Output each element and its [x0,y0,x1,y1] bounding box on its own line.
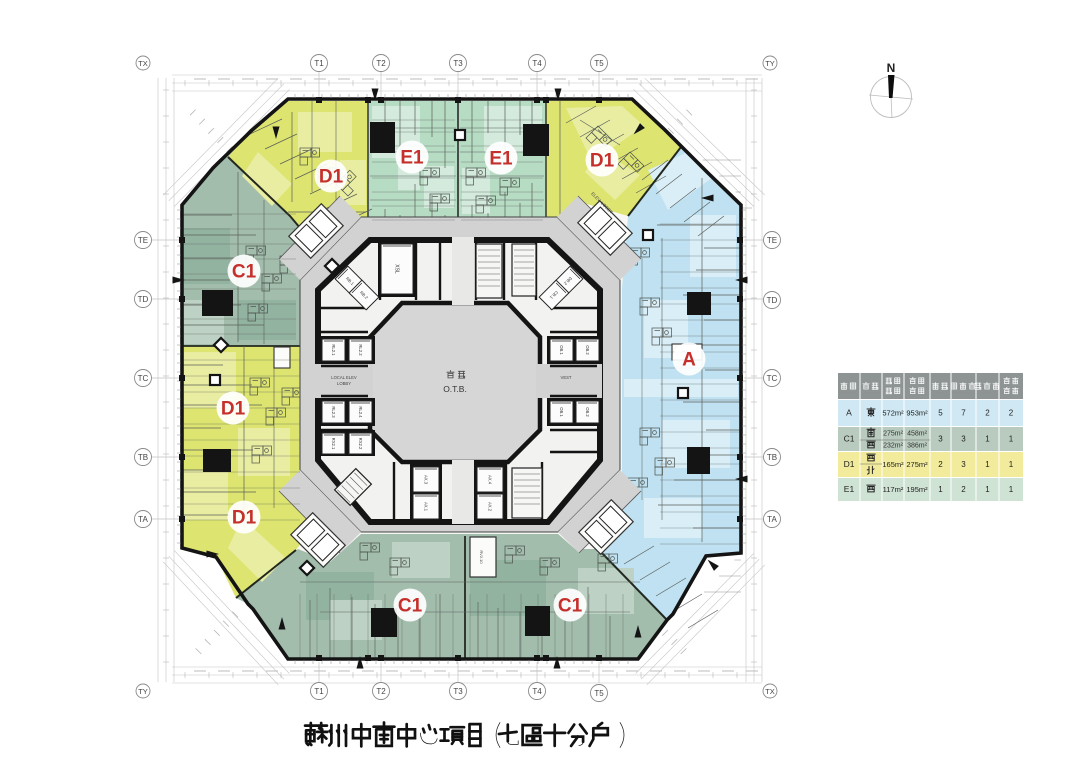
svg-text:TA: TA [767,515,777,524]
svg-text:A: A [682,350,696,371]
svg-text:7: 7 [961,409,966,418]
svg-text:TB: TB [138,453,148,462]
svg-text:T2: T2 [376,59,386,68]
svg-text:T5: T5 [594,689,604,698]
svg-text:1: 1 [938,485,943,494]
svg-text:RL2.4: RL2.4 [358,406,363,418]
svg-text:RX2.2: RX2.2 [358,438,363,450]
svg-text:A: A [846,408,852,418]
svg-text:D1: D1 [221,399,246,420]
svg-text:T3: T3 [453,59,463,68]
svg-text:D1: D1 [319,167,344,188]
svg-text:TE: TE [138,236,148,245]
svg-text:2: 2 [938,460,943,469]
svg-text:TY: TY [138,687,148,696]
svg-text:AX.3: AX.3 [424,475,429,485]
svg-text:TY: TY [765,59,775,68]
svg-text:AX.4: AX.4 [488,475,493,485]
svg-text:3: 3 [961,435,966,444]
svg-text:1: 1 [1009,460,1014,469]
svg-text:OB.1: OB.1 [559,407,564,417]
svg-text:LOBBY: LOBBY [337,381,351,386]
svg-text:XSL: XSL [394,264,400,274]
svg-text:T4: T4 [532,59,542,68]
svg-text:D1: D1 [590,151,615,172]
svg-text:RL2.1: RL2.1 [331,344,336,356]
svg-text:C1: C1 [398,596,423,617]
svg-text:T3: T3 [453,687,463,696]
svg-text:T2: T2 [376,687,386,696]
svg-text:E1: E1 [844,484,855,494]
svg-text:2: 2 [1009,409,1014,418]
svg-text:E1: E1 [400,148,424,169]
svg-text:N: N [887,61,896,75]
svg-text:2: 2 [985,409,990,418]
svg-text:O.T.B.: O.T.B. [443,384,467,394]
svg-text:TX: TX [138,59,148,68]
svg-text:C1: C1 [558,596,583,617]
svg-text:232m²: 232m² [883,443,904,450]
svg-text:RV2.10: RV2.10 [479,550,484,564]
svg-text:D1: D1 [844,459,855,469]
svg-text:OB.1: OB.1 [559,345,564,355]
svg-text:T1: T1 [314,687,324,696]
svg-text:TE: TE [767,236,777,245]
svg-text:3: 3 [938,435,943,444]
svg-text:C1: C1 [232,262,257,283]
svg-text:TD: TD [767,296,778,305]
svg-text:1: 1 [1009,435,1014,444]
svg-text:LOCAL ELEV: LOCAL ELEV [331,375,357,380]
svg-text:OB.2: OB.2 [585,345,590,355]
svg-text:2: 2 [961,485,966,494]
svg-text:1: 1 [1009,485,1014,494]
svg-text:TB: TB [767,453,777,462]
svg-text:117m²: 117m² [883,485,904,494]
svg-text:VEST: VEST [561,375,572,380]
svg-text:1: 1 [985,485,990,494]
svg-text:1: 1 [985,435,990,444]
svg-text:TX: TX [765,687,775,696]
svg-text:AX.2: AX.2 [488,502,493,512]
svg-text:275m²: 275m² [906,460,928,469]
svg-text:572m²: 572m² [882,409,904,418]
svg-text:TD: TD [138,295,149,304]
svg-text:3: 3 [961,460,966,469]
svg-text:458m²: 458m² [907,431,928,438]
svg-text:386m²: 386m² [907,443,928,450]
svg-text:E1: E1 [489,149,513,170]
svg-text:1: 1 [985,460,990,469]
svg-text:T1: T1 [314,59,324,68]
svg-text:TC: TC [138,374,149,383]
svg-text:953m²: 953m² [906,409,928,418]
svg-text:RL2.2: RL2.2 [358,344,363,356]
svg-text:C1: C1 [844,434,855,444]
svg-text:OB.2: OB.2 [585,407,590,417]
svg-text:RL2.3: RL2.3 [331,406,336,418]
svg-text:275m²: 275m² [883,431,904,438]
svg-text:TA: TA [138,515,148,524]
svg-text:T5: T5 [594,59,604,68]
svg-text:195m²: 195m² [906,485,928,494]
svg-text:AX.1: AX.1 [424,502,429,512]
svg-text:165m²: 165m² [882,460,904,469]
svg-text:5: 5 [938,409,943,418]
svg-text:TC: TC [767,374,778,383]
svg-text:D1: D1 [232,508,257,529]
svg-text:RX2.1: RX2.1 [331,438,336,450]
svg-text:T4: T4 [532,687,542,696]
